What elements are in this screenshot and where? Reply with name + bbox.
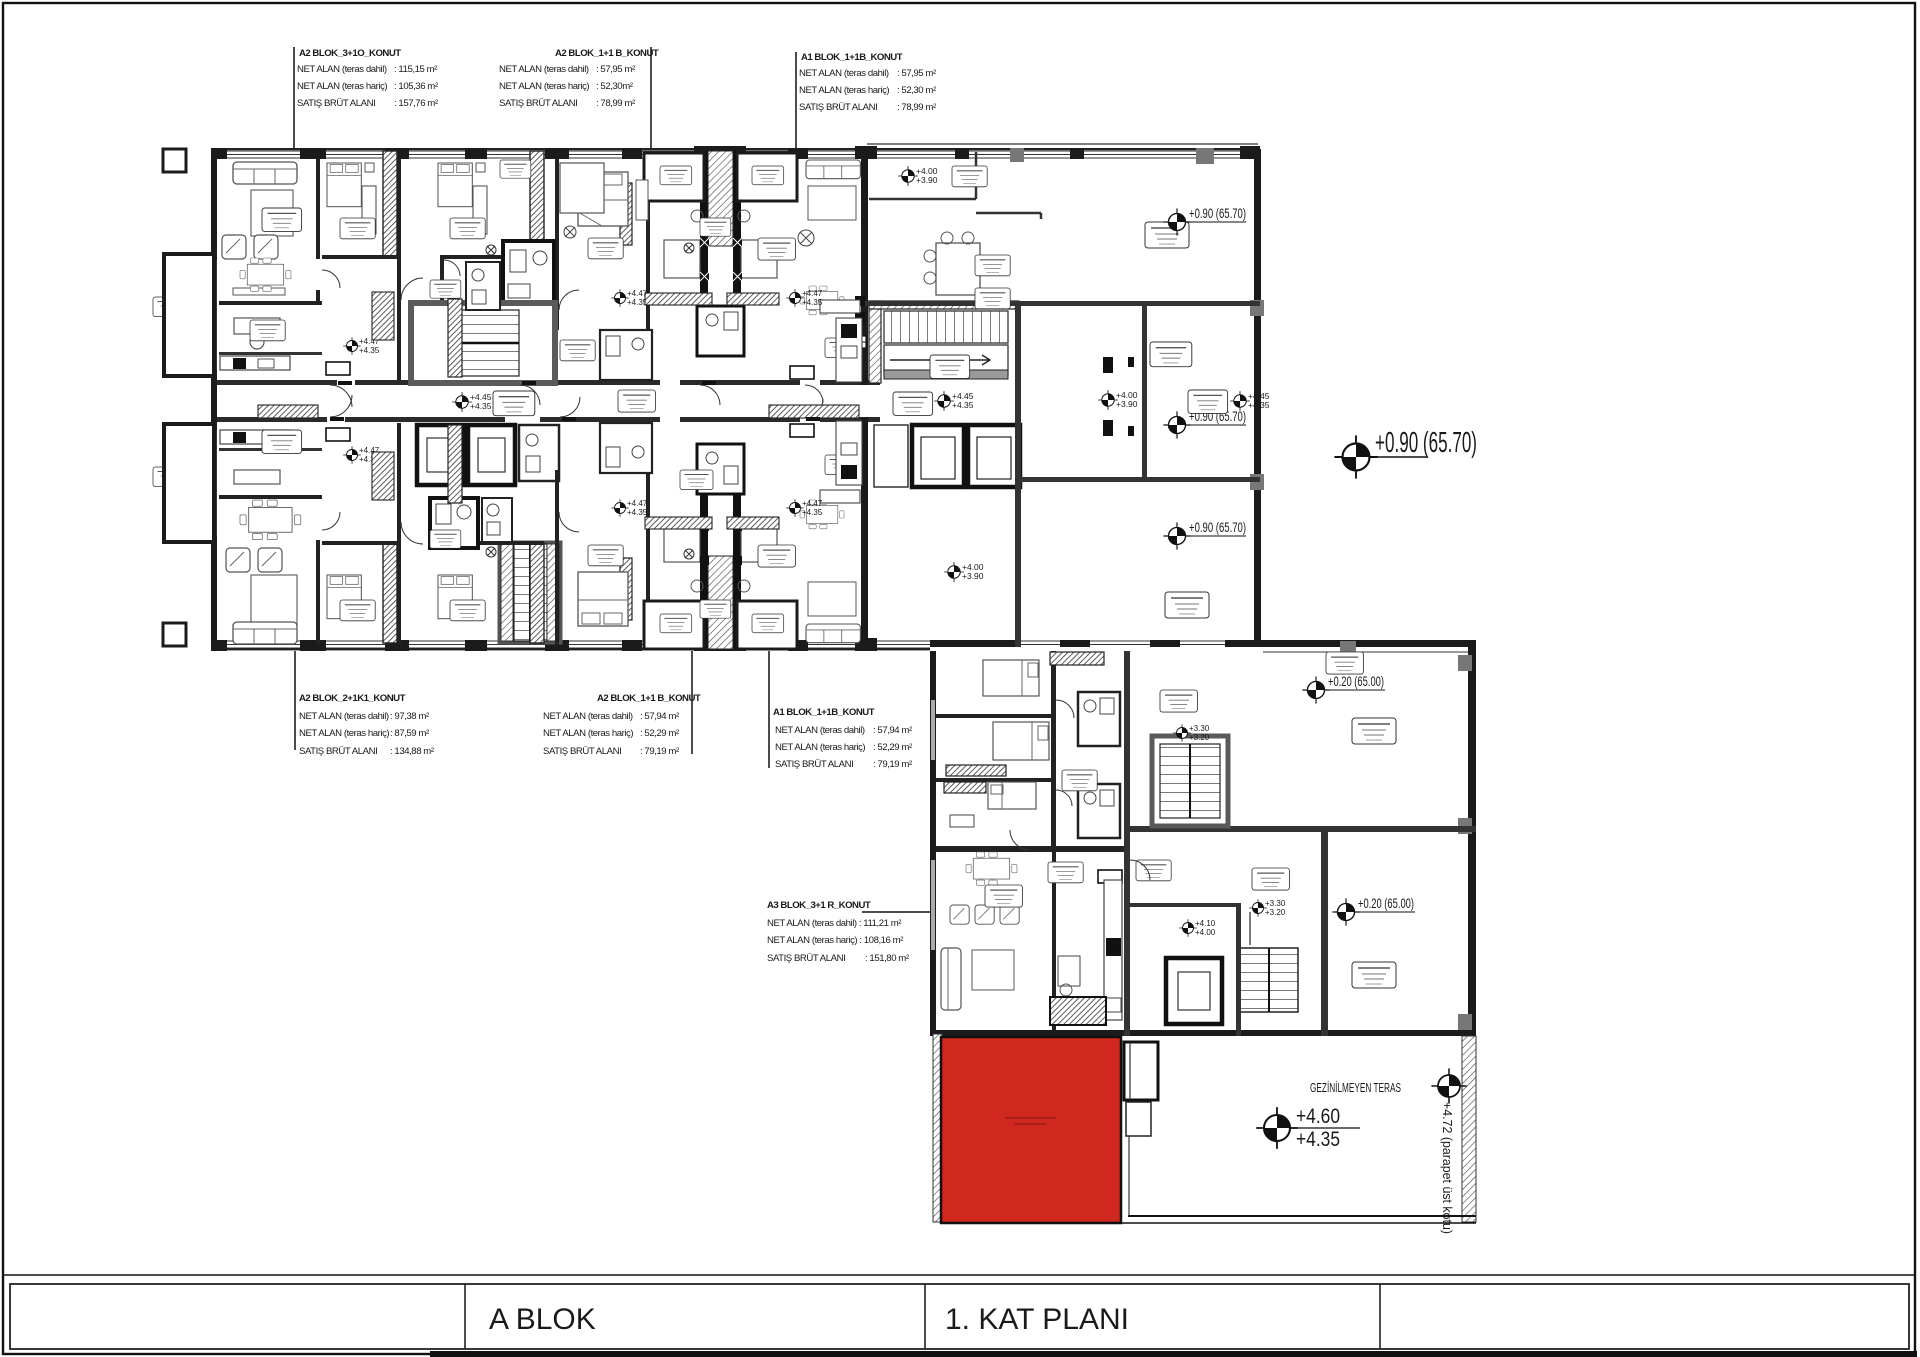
svg-text:+3.90: +3.90 (962, 571, 984, 581)
svg-text:NET ALAN (teras dahil) : 111,2: NET ALAN (teras dahil) : 111,21 m² (767, 918, 902, 929)
svg-text:NET ALAN (teras hariç): NET ALAN (teras hariç) (299, 728, 389, 739)
svg-text:: 57,94 m²: : 57,94 m² (640, 711, 680, 722)
svg-text:1. KAT PLANI: 1. KAT PLANI (945, 1303, 1129, 1336)
svg-text:+0.90 (65.70): +0.90 (65.70) (1189, 520, 1246, 535)
svg-text:NET ALAN (teras hariç): NET ALAN (teras hariç) (775, 742, 865, 753)
svg-text:+4.35: +4.35 (952, 400, 974, 410)
svg-text:A BLOK: A BLOK (489, 1303, 596, 1336)
svg-text:: 52,30 m²: : 52,30 m² (897, 85, 937, 96)
svg-text:: 57,95 m²: : 57,95 m² (596, 64, 636, 75)
svg-text:: 115,15 m²: : 115,15 m² (394, 64, 438, 75)
svg-text:+0.90 (65.70): +0.90 (65.70) (1375, 427, 1477, 459)
svg-text:NET ALAN (teras dahil): NET ALAN (teras dahil) (775, 725, 865, 736)
svg-text:SATIŞ BRÜT ALANI: SATIŞ BRÜT ALANI (297, 98, 375, 109)
svg-text:+0.20 (65.00): +0.20 (65.00) (1328, 674, 1384, 689)
svg-text:: 79,19 m²: : 79,19 m² (640, 746, 680, 757)
svg-text:: 78,99 m²: : 78,99 m² (897, 102, 937, 113)
svg-text:NET ALAN (teras hariç): NET ALAN (teras hariç) (297, 81, 387, 92)
svg-text:A1 BLOK_1+1B_KONUT: A1 BLOK_1+1B_KONUT (801, 52, 903, 63)
svg-text:+0.20 (65.00): +0.20 (65.00) (1358, 896, 1414, 911)
svg-text:+4.47: +4.47 (802, 499, 823, 508)
svg-text:NET ALAN (teras hariç): NET ALAN (teras hariç) (499, 81, 589, 92)
svg-text:: 157,76 m²: : 157,76 m² (394, 98, 439, 109)
svg-text:A1 BLOK_1+1B_KONUT: A1 BLOK_1+1B_KONUT (773, 707, 875, 718)
svg-text:NET ALAN (teras hariç): NET ALAN (teras hariç) (799, 85, 889, 96)
svg-text:A2 BLOK_3+1O_KONUT: A2 BLOK_3+1O_KONUT (299, 48, 401, 59)
svg-text:: 134,88 m²: : 134,88 m² (390, 746, 435, 757)
svg-text:NET ALAN (teras dahil): NET ALAN (teras dahil) (297, 64, 387, 75)
svg-text:+3.20: +3.20 (1189, 733, 1210, 742)
svg-text:: 57,95 m²: : 57,95 m² (897, 68, 937, 79)
svg-text:: 151,80 m²: : 151,80 m² (865, 953, 910, 964)
svg-text:SATIŞ BRÜT ALANI: SATIŞ BRÜT ALANI (775, 759, 853, 770)
svg-text:NET ALAN (teras dahil): NET ALAN (teras dahil) (499, 64, 589, 75)
svg-text:A3 BLOK_3+1 R_KONUT: A3 BLOK_3+1 R_KONUT (767, 900, 871, 911)
svg-text:+3.30: +3.30 (1189, 724, 1210, 733)
svg-text:NET ALAN (teras hariç) : 108,1: NET ALAN (teras hariç) : 108,16 m² (767, 935, 904, 946)
svg-text:SATIŞ BRÜT ALANI: SATIŞ BRÜT ALANI (499, 98, 577, 109)
svg-text:+4.72 (parapet üst kotu): +4.72 (parapet üst kotu) (1440, 1102, 1454, 1234)
svg-text:: 79,19 m²: : 79,19 m² (873, 759, 913, 770)
svg-text:GEZİNİLMEYEN TERAS: GEZİNİLMEYEN TERAS (1310, 1081, 1401, 1095)
svg-text:+4.35: +4.35 (470, 401, 492, 411)
svg-text:A2 BLOK_1+1 B_KONUT: A2 BLOK_1+1 B_KONUT (597, 693, 701, 704)
svg-text:+4.35: +4.35 (802, 298, 823, 307)
svg-text:SATIŞ BRÜT ALANI: SATIŞ BRÜT ALANI (767, 953, 845, 964)
svg-text:+0.90 (65.70): +0.90 (65.70) (1189, 206, 1246, 221)
svg-text:SATIŞ BRÜT ALANI: SATIŞ BRÜT ALANI (299, 746, 377, 757)
svg-text:NET ALAN (teras dahil): NET ALAN (teras dahil) (299, 711, 389, 722)
svg-text:+4.47: +4.47 (802, 289, 823, 298)
svg-text:+4.35: +4.35 (627, 508, 648, 517)
svg-text:+3.30: +3.30 (1265, 899, 1286, 908)
svg-text:+4.35: +4.35 (359, 346, 380, 355)
svg-text:: 52,29 m²: : 52,29 m² (640, 728, 680, 739)
svg-text:+4.35: +4.35 (1248, 400, 1270, 410)
svg-text:: 97,38 m²: : 97,38 m² (390, 711, 430, 722)
svg-text:+3.90: +3.90 (916, 175, 938, 185)
svg-text:+4.47: +4.47 (627, 499, 648, 508)
svg-text:: 78,99 m²: : 78,99 m² (596, 98, 636, 109)
svg-text:+4.35: +4.35 (802, 508, 823, 517)
svg-text:: 57,94 m²: : 57,94 m² (873, 725, 913, 736)
svg-text:: 87,59 m²: : 87,59 m² (390, 728, 430, 739)
svg-text:NET ALAN (teras hariç): NET ALAN (teras hariç) (543, 728, 633, 739)
svg-text:+4.60: +4.60 (1296, 1105, 1340, 1128)
svg-text:+4.35: +4.35 (1296, 1128, 1340, 1151)
svg-text:: 52,30m²: : 52,30m² (596, 81, 634, 92)
svg-text:A2 BLOK_1+1 B_KONUT: A2 BLOK_1+1 B_KONUT (555, 48, 659, 59)
svg-text:+4.10: +4.10 (1195, 919, 1216, 928)
svg-text:SATIŞ BRÜT ALANI: SATIŞ BRÜT ALANI (799, 102, 877, 113)
svg-text:: 105,36 m²: : 105,36 m² (394, 81, 439, 92)
svg-text:SATIŞ BRÜT ALANI: SATIŞ BRÜT ALANI (543, 746, 621, 757)
svg-text:+3.20: +3.20 (1265, 908, 1286, 917)
svg-text:NET ALAN (teras dahil): NET ALAN (teras dahil) (543, 711, 633, 722)
svg-text:NET ALAN (teras dahil): NET ALAN (teras dahil) (799, 68, 889, 79)
svg-text:A2 BLOK_2+1K1_KONUT: A2 BLOK_2+1K1_KONUT (299, 693, 406, 704)
svg-text:+3.90: +3.90 (1116, 399, 1138, 409)
svg-text:+4.00: +4.00 (1195, 928, 1216, 937)
svg-text:: 52,29 m²: : 52,29 m² (873, 742, 913, 753)
